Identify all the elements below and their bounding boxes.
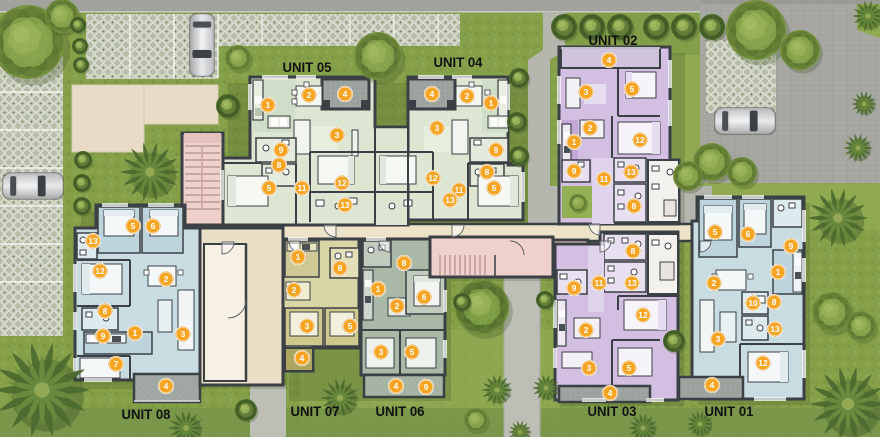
svg-text:3: 3 bbox=[305, 321, 310, 331]
svg-text:5: 5 bbox=[131, 221, 136, 231]
svg-text:UNIT 01: UNIT 01 bbox=[705, 404, 754, 419]
svg-text:UNIT 02: UNIT 02 bbox=[589, 33, 638, 48]
svg-text:3: 3 bbox=[335, 130, 340, 140]
svg-text:2: 2 bbox=[584, 325, 589, 335]
svg-text:2: 2 bbox=[292, 285, 297, 295]
svg-text:8: 8 bbox=[632, 201, 637, 211]
svg-text:13: 13 bbox=[627, 278, 637, 288]
svg-text:9: 9 bbox=[279, 145, 284, 155]
svg-text:3: 3 bbox=[716, 334, 721, 344]
svg-text:UNIT 05: UNIT 05 bbox=[283, 60, 332, 75]
svg-text:6: 6 bbox=[746, 229, 751, 239]
svg-text:5: 5 bbox=[630, 84, 635, 94]
svg-text:8: 8 bbox=[631, 246, 636, 256]
svg-text:13: 13 bbox=[88, 236, 98, 246]
svg-text:2: 2 bbox=[164, 274, 169, 284]
svg-text:11: 11 bbox=[600, 174, 609, 184]
svg-text:12: 12 bbox=[638, 310, 648, 320]
svg-text:12: 12 bbox=[95, 266, 105, 276]
svg-text:5: 5 bbox=[348, 321, 353, 331]
svg-text:9: 9 bbox=[424, 382, 429, 392]
svg-text:8: 8 bbox=[485, 167, 490, 177]
svg-text:8: 8 bbox=[338, 263, 343, 273]
svg-text:UNIT 06: UNIT 06 bbox=[376, 404, 425, 419]
svg-text:2: 2 bbox=[395, 301, 400, 311]
svg-text:UNIT 04: UNIT 04 bbox=[434, 55, 483, 70]
svg-text:8: 8 bbox=[772, 297, 777, 307]
svg-text:2: 2 bbox=[712, 278, 717, 288]
svg-text:2: 2 bbox=[465, 91, 470, 101]
svg-text:6: 6 bbox=[422, 292, 427, 302]
svg-text:4: 4 bbox=[608, 388, 613, 398]
svg-text:3: 3 bbox=[435, 123, 440, 133]
svg-text:4: 4 bbox=[394, 381, 399, 391]
svg-text:UNIT 03: UNIT 03 bbox=[588, 404, 637, 419]
svg-text:4: 4 bbox=[300, 353, 305, 363]
svg-text:4: 4 bbox=[607, 55, 612, 65]
svg-text:5: 5 bbox=[267, 183, 272, 193]
svg-text:11: 11 bbox=[298, 183, 307, 193]
svg-text:1: 1 bbox=[133, 328, 138, 338]
svg-text:8: 8 bbox=[277, 160, 282, 170]
svg-text:9: 9 bbox=[789, 241, 794, 251]
svg-text:4: 4 bbox=[710, 380, 715, 390]
svg-text:5: 5 bbox=[410, 347, 415, 357]
svg-text:12: 12 bbox=[758, 358, 768, 368]
svg-text:2: 2 bbox=[588, 123, 593, 133]
svg-text:1: 1 bbox=[489, 98, 494, 108]
svg-text:UNIT 08: UNIT 08 bbox=[122, 407, 171, 422]
svg-text:12: 12 bbox=[337, 178, 347, 188]
svg-text:13: 13 bbox=[770, 324, 780, 334]
svg-text:3: 3 bbox=[379, 347, 384, 357]
svg-text:5: 5 bbox=[492, 183, 497, 193]
svg-text:10: 10 bbox=[748, 298, 758, 308]
svg-text:11: 11 bbox=[455, 185, 464, 195]
svg-text:9: 9 bbox=[572, 283, 577, 293]
svg-text:UNIT 07: UNIT 07 bbox=[291, 404, 340, 419]
svg-text:8: 8 bbox=[103, 306, 108, 316]
svg-text:1: 1 bbox=[572, 137, 577, 147]
svg-text:9: 9 bbox=[101, 331, 106, 341]
svg-text:4: 4 bbox=[430, 89, 435, 99]
svg-text:1: 1 bbox=[376, 284, 381, 294]
svg-text:4: 4 bbox=[343, 89, 348, 99]
svg-text:12: 12 bbox=[635, 135, 645, 145]
svg-text:4: 4 bbox=[164, 381, 169, 391]
svg-text:7: 7 bbox=[114, 359, 119, 369]
svg-text:8: 8 bbox=[402, 258, 407, 268]
svg-text:1: 1 bbox=[776, 267, 781, 277]
svg-text:13: 13 bbox=[445, 195, 455, 205]
svg-text:2: 2 bbox=[307, 90, 312, 100]
svg-text:12: 12 bbox=[428, 173, 438, 183]
svg-text:9: 9 bbox=[572, 166, 577, 176]
svg-text:1: 1 bbox=[296, 252, 301, 262]
svg-text:9: 9 bbox=[494, 145, 499, 155]
svg-text:13: 13 bbox=[340, 200, 350, 210]
svg-text:11: 11 bbox=[595, 278, 604, 288]
svg-text:5: 5 bbox=[627, 363, 632, 373]
svg-text:5: 5 bbox=[713, 227, 718, 237]
svg-text:3: 3 bbox=[584, 87, 589, 97]
svg-text:1: 1 bbox=[266, 100, 271, 110]
svg-text:6: 6 bbox=[151, 221, 156, 231]
svg-text:13: 13 bbox=[626, 167, 636, 177]
svg-text:3: 3 bbox=[181, 329, 186, 339]
svg-text:3: 3 bbox=[587, 363, 592, 373]
